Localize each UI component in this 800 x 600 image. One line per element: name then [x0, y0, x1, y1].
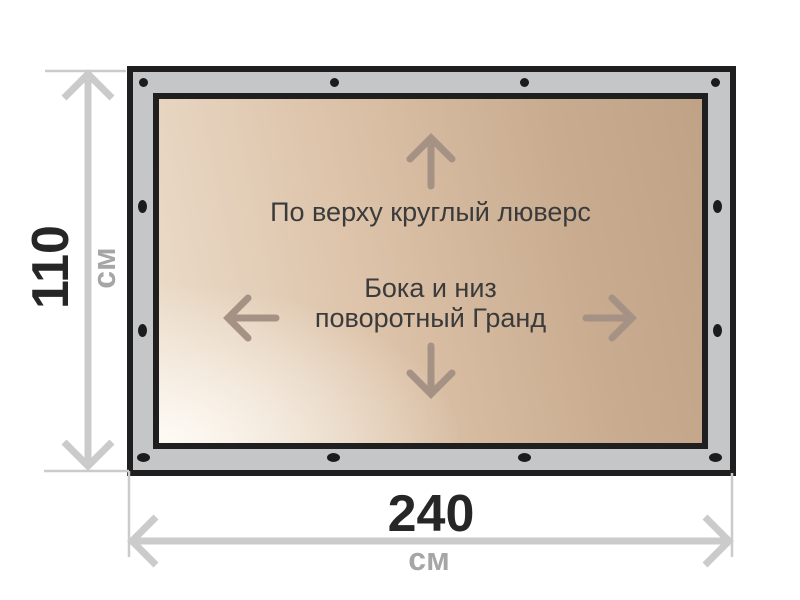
grommet-icon: [713, 200, 722, 213]
grommet-icon: [137, 453, 150, 462]
grommet-icon: [330, 78, 339, 87]
grommet-icon: [138, 200, 147, 213]
grommet-icon: [139, 78, 148, 87]
banner-face: [153, 93, 708, 449]
grommet-icon: [138, 324, 147, 337]
face-note-bottom: Бока и низ поворотный Гранд: [153, 273, 708, 333]
width-unit-label: см: [369, 541, 489, 577]
grommet-icon: [327, 453, 340, 462]
face-note-bottom-line1: Бока и низ: [153, 273, 708, 303]
grommet-icon: [713, 324, 722, 337]
grommet-icon: [520, 78, 529, 87]
grommet-icon: [518, 453, 531, 462]
height-value-label: 110: [23, 167, 79, 367]
width-value-label: 240: [331, 486, 531, 542]
face-note-bottom-line2: поворотный Гранд: [153, 303, 708, 333]
height-unit-label: см: [86, 208, 122, 328]
banner-dimension-diagram: По верху круглый люверс Бока и низ повор…: [0, 0, 800, 600]
grommet-icon: [709, 453, 722, 462]
face-note-top: По верху круглый люверс: [153, 197, 708, 228]
grommet-icon: [711, 78, 720, 87]
